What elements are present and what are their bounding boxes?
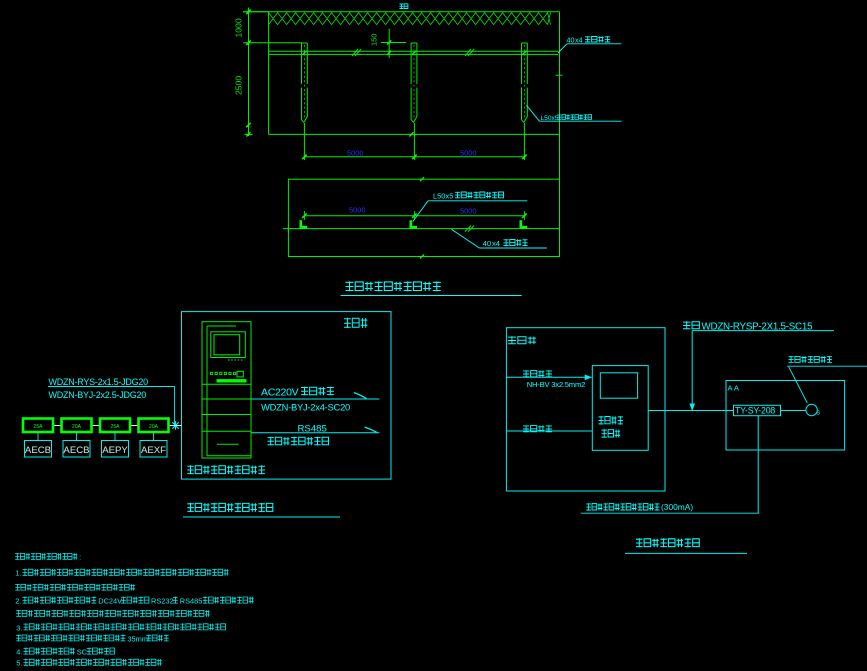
svg-text:A A: A A: [728, 384, 740, 393]
svg-text:L50: L50: [433, 192, 445, 201]
svg-text:150: 150: [370, 34, 379, 46]
svg-text:5000: 5000: [460, 207, 476, 216]
svg-text:5000: 5000: [347, 148, 363, 157]
svg-text:5000: 5000: [349, 206, 365, 215]
svg-text:5.: 5.: [16, 659, 22, 668]
svg-text:x5: x5: [446, 192, 454, 201]
svg-text:5000: 5000: [460, 148, 476, 157]
svg-text:RS485: RS485: [180, 596, 203, 605]
svg-text:TY-SY-208: TY-SY-208: [735, 406, 775, 416]
svg-text:WDZN-BYJ-2x4-SC20: WDZN-BYJ-2x4-SC20: [261, 402, 350, 413]
svg-text:40: 40: [483, 239, 491, 248]
svg-text:NH-BV 3x2.5mm2: NH-BV 3x2.5mm2: [527, 380, 585, 389]
svg-text:AECB: AECB: [25, 445, 51, 456]
svg-text:3.: 3.: [16, 623, 22, 632]
svg-text:AEXF: AEXF: [141, 445, 166, 456]
svg-text:RS232: RS232: [151, 596, 174, 605]
svg-text:WDZN-BYJ-2x2.5-JDG20: WDZN-BYJ-2x2.5-JDG20: [49, 390, 147, 400]
svg-text:s: s: [817, 410, 821, 417]
svg-text:2.: 2.: [15, 596, 21, 605]
svg-text:25A: 25A: [111, 424, 121, 430]
svg-text:2500: 2500: [234, 76, 244, 95]
svg-text:AEPY: AEPY: [102, 445, 128, 456]
svg-text:35mm: 35mm: [127, 634, 148, 643]
svg-text:SC: SC: [77, 647, 88, 656]
svg-text:AECB: AECB: [63, 445, 89, 456]
svg-text:(300mA): (300mA): [661, 502, 693, 512]
svg-text:AC220V: AC220V: [261, 386, 299, 398]
svg-text:x4: x4: [492, 239, 500, 248]
svg-text:25A: 25A: [34, 424, 44, 430]
svg-text:20A: 20A: [72, 424, 82, 430]
svg-text:WDZN-RYS-2x1.5-JDG20: WDZN-RYS-2x1.5-JDG20: [49, 377, 149, 387]
svg-text:4.: 4.: [16, 647, 22, 656]
svg-text:1.: 1.: [15, 569, 21, 578]
svg-text:40: 40: [567, 35, 575, 44]
svg-text:1000: 1000: [234, 18, 244, 37]
svg-text::: :: [79, 554, 81, 561]
svg-text:x4: x4: [575, 35, 583, 44]
svg-text:20A: 20A: [149, 424, 159, 430]
svg-text:DC24V: DC24V: [98, 596, 122, 605]
